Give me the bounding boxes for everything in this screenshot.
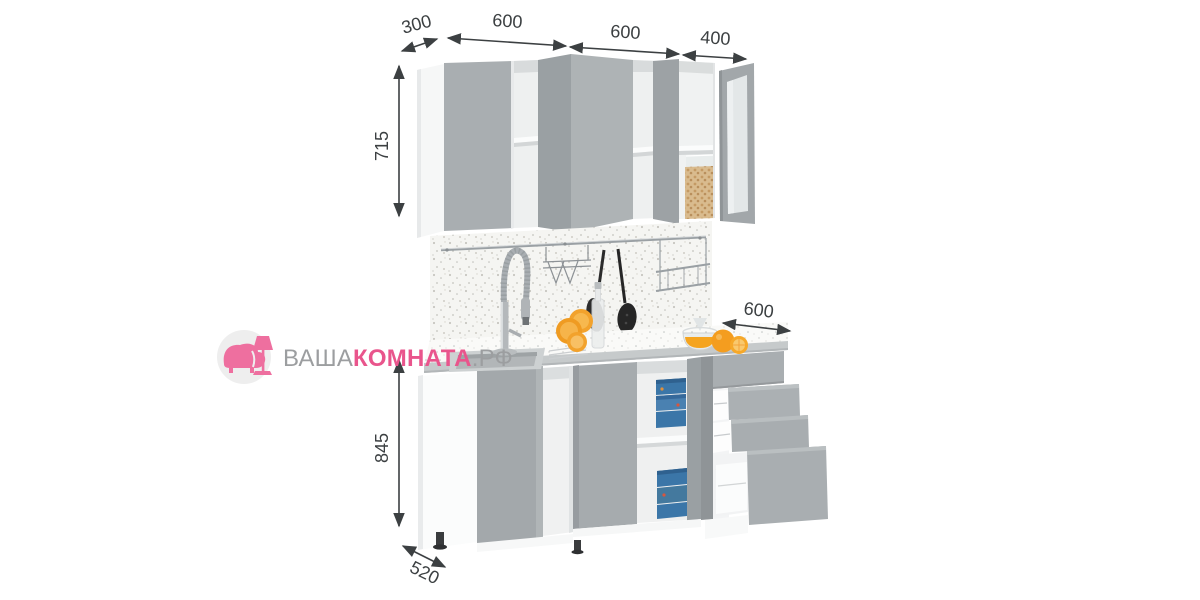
wall-glass-interior-shadow — [679, 61, 715, 74]
dim-wall-center-label: 600 — [610, 21, 641, 43]
wall-glass-shelf — [679, 145, 715, 151]
faucet-sprayer-tip — [523, 317, 530, 325]
wall-interior-1-shadow — [514, 60, 538, 73]
utensil-hole — [626, 314, 629, 317]
blue-container — [656, 410, 686, 428]
dim-wall-center-arrow — [570, 47, 679, 54]
dim-wall-depth-arrow — [402, 39, 437, 51]
blue-containers-top — [656, 378, 686, 428]
dim-wall-right-arrow — [683, 55, 746, 59]
wall-open-door-right-plane — [571, 54, 633, 232]
sink-cabinet-open-door — [477, 366, 543, 545]
wall-cabinets — [417, 54, 755, 238]
glass-door-frosted-highlight — [727, 80, 734, 214]
container-content — [676, 403, 679, 406]
middle-door-left-edge — [573, 365, 579, 529]
brand-text: ВАШАКОМНАТА.РФ — [283, 345, 513, 372]
armchair-leg — [229, 368, 233, 373]
dim-base-height-label: 845 — [372, 433, 392, 463]
sink-interior-shadow — [543, 366, 573, 380]
drawer-unit — [705, 351, 828, 539]
orange-highlight — [716, 334, 722, 340]
brand-text-highlight: КОМНАТА — [353, 345, 472, 372]
wall-carcass-left-edge — [417, 69, 421, 238]
wall-open-door-left-plane — [538, 54, 571, 232]
grain-jar — [685, 154, 715, 219]
container-content — [662, 493, 665, 496]
cabinet-foot — [574, 540, 581, 551]
bottle-neck — [596, 288, 601, 301]
rail-mount — [698, 236, 701, 239]
cabinet-foot — [436, 532, 444, 546]
container-content — [660, 387, 663, 390]
drawer-b-box — [713, 421, 731, 453]
dim-wall-left-label: 600 — [492, 10, 523, 32]
blue-containers-bottom — [657, 468, 687, 519]
armchair-leg — [250, 368, 254, 373]
wall-open-door-narrow — [653, 59, 679, 224]
product-image-canvas: 300 600 600 400 715 845 520 600 ВАШАКОМН… — [0, 0, 1200, 600]
base-cabinets — [418, 351, 828, 554]
middle-cabinet-door-left — [573, 362, 637, 529]
dim-base-depth-label: 520 — [407, 557, 443, 588]
lamp-base — [253, 371, 272, 375]
wall-door-closed — [444, 61, 514, 231]
armchair-floor-lamp-icon — [217, 330, 273, 384]
base-carcass-left-edge — [418, 375, 423, 550]
lamp-pole — [262, 350, 265, 371]
wall-carcass-left-side — [417, 64, 444, 238]
rail-mount — [563, 242, 566, 245]
wall-glass-door — [719, 63, 755, 224]
utensil-hole — [625, 322, 628, 325]
middle-interior-shadow — [637, 360, 687, 374]
rail-mount — [445, 248, 448, 251]
wall-door-closed-edge — [511, 61, 514, 229]
faucet-sprayer — [521, 298, 530, 320]
sink-interior-edge — [569, 366, 573, 533]
sink-cabinet-interior — [543, 366, 573, 536]
dim-base-unit-label: 600 — [743, 298, 775, 322]
kitchen-dimension-diagram: 300 600 600 400 715 845 520 600 ВАШАКОМН… — [0, 0, 1200, 600]
cabinet-foot-base — [572, 550, 584, 554]
bottle-cap — [595, 282, 602, 289]
dim-wall-height-label: 715 — [372, 131, 392, 161]
bottle-body — [592, 299, 604, 348]
dim-wall-right-label: 400 — [700, 27, 731, 49]
wall-carcass-right-edge — [713, 63, 715, 218]
sink-door-highlight — [536, 366, 543, 538]
cabinet-foot-base — [433, 544, 447, 549]
drawer-a-box — [713, 390, 728, 421]
drawer-c-box — [716, 462, 747, 514]
brand-text-prefix: ВАША — [283, 345, 353, 372]
brand-text-suffix: .РФ — [472, 345, 513, 372]
base-carcass-left-side — [418, 372, 477, 550]
blue-container — [657, 485, 687, 504]
drawer-c-front — [747, 446, 828, 525]
dim-wall-depth-label: 300 — [399, 11, 433, 38]
dim-wall-left-arrow — [448, 38, 566, 46]
middle-cabinet-door-right — [687, 357, 701, 521]
grain-jar-texture — [685, 166, 715, 219]
orange-slice-inner — [571, 336, 584, 349]
unit-gap-shadow — [701, 356, 713, 520]
